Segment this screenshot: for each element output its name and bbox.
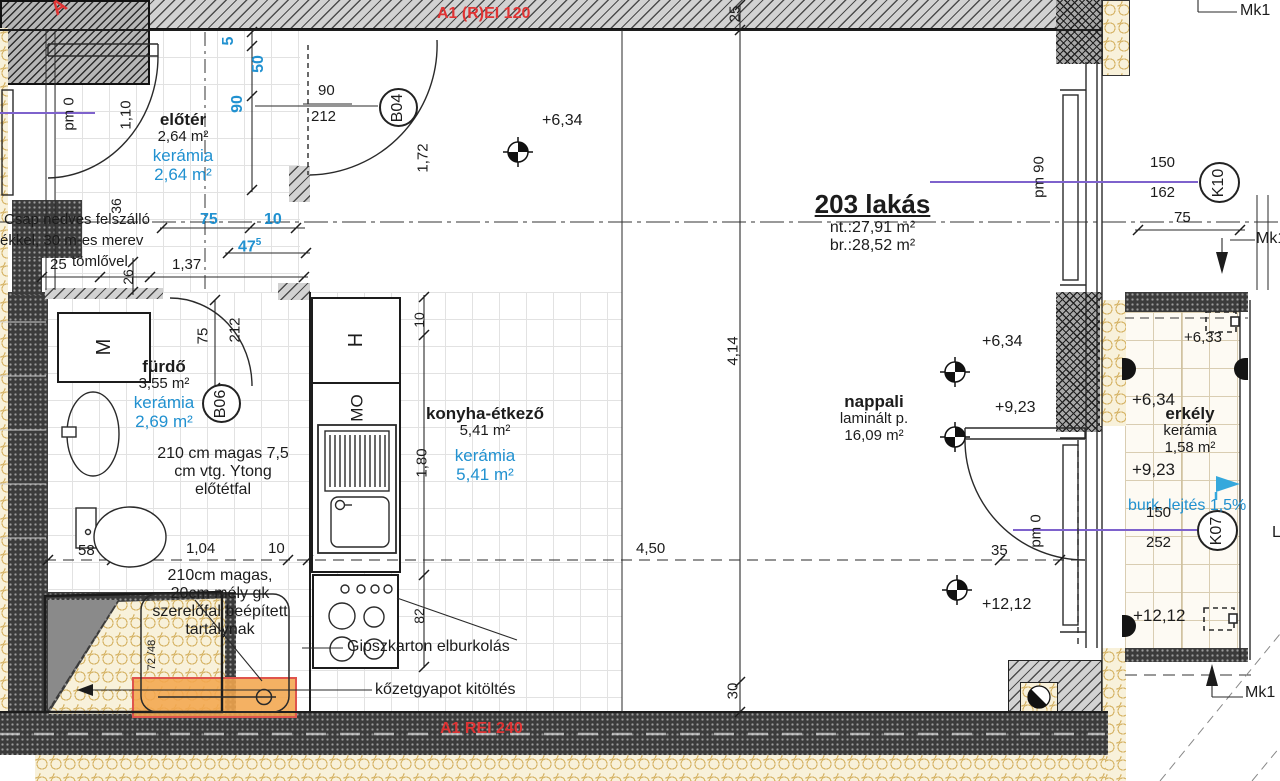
dim-58: 58 [78, 543, 95, 560]
room-eloter: előtér 2,64 m² kerámia 2,64 m² [118, 110, 248, 184]
level-nappali-2: +9,23 [995, 399, 1035, 417]
apartment-gross-area: br.:28,52 m² [795, 237, 950, 255]
apartment-title-block: 203 lakás nt.:27,91 m² br.:28,52 m² [795, 190, 950, 255]
dim-26: 26 [121, 269, 137, 285]
dim-90: 90 [229, 95, 247, 113]
mark-mk1-mid: Mk1 [1256, 230, 1280, 248]
dim-50: 50 [250, 55, 268, 73]
dim-1-04: 1,04 [186, 541, 215, 558]
dim-82: 82 [412, 608, 428, 624]
pm90-label: pm 90 [1032, 156, 1049, 198]
sink-label: MO [347, 394, 366, 421]
dim-terrace-252: 252 [1146, 535, 1171, 552]
dim-top-25: 25 [728, 6, 745, 23]
riser-note-line1: Csap nedves felszálló [4, 212, 150, 229]
dim-4-50: 4,50 [636, 541, 665, 558]
dim-4-14: 4,14 [726, 336, 743, 365]
ytong-note-line2: cm vtg. Ytong [128, 463, 318, 481]
dim-1-72: 1,72 [416, 143, 433, 172]
dim-door-width: 90 [318, 83, 335, 100]
level-nappali-1: +6,34 [982, 333, 1022, 351]
annotation-layer: A1 (R)EI 120 A A1 REI 240 203 lakás nt.:… [0, 0, 1280, 781]
tank-note-line2: 20cm mély gk [136, 585, 304, 603]
room-finish: kerámia [118, 146, 248, 165]
room-finish-area: 2,64 m² [118, 165, 248, 184]
floor-plan: B04 B06 K10 K07 A1 (R)EI 120 A A1 REI 24… [0, 0, 1280, 781]
tank-note-line1: 210cm magas, [136, 567, 304, 585]
ytong-note-line3: előtétfal [128, 481, 318, 499]
pm0-terrace-label: pm 0 [1029, 514, 1046, 547]
dim-10: 10 [264, 211, 282, 229]
dim-35: 35 [991, 543, 1008, 560]
room-area: 5,41 m² [400, 423, 570, 440]
level-nappali-3: +12,12 [982, 596, 1031, 614]
dim-window-75: 75 [1174, 210, 1191, 227]
room-area: 1,58 m² [1148, 440, 1232, 457]
tank-note: 210cm magas, 20cm mély gk szerelőfal beé… [136, 567, 304, 639]
tank-note-line3: szerelőfal beépített [136, 603, 304, 621]
ytong-note-line1: 210 cm magas 7,5 [128, 445, 318, 463]
room-area: 16,09 m² [820, 428, 928, 445]
level-erkely-2: +9,23 [1132, 460, 1175, 479]
apartment-net-area: nt.:27,91 m² [795, 219, 950, 237]
dim-36: 36 [109, 198, 125, 214]
pm0-entry-label: pm 0 [62, 97, 79, 130]
room-floor: laminált p. [820, 411, 928, 428]
room-nappali: nappali laminált p. 16,09 m² [820, 392, 928, 445]
mark-l-cut: L [1272, 524, 1280, 542]
dim-5: 5 [220, 37, 238, 46]
ytong-note: 210 cm magas 7,5 cm vtg. Ytong előtétfal [128, 445, 318, 499]
dim-door-height: 212 [311, 109, 336, 126]
fridge-label: H [345, 333, 367, 347]
mark-mk1-bottom: Mk1 [1245, 684, 1275, 702]
mark-mk1-top: Mk1 [1240, 2, 1270, 20]
apartment-name: 203 lakás [795, 190, 950, 219]
dim-1-37: 1,37 [172, 257, 201, 274]
fire-rating-corner: A [47, 0, 72, 21]
tank-note-line4: tartálynak [136, 621, 304, 639]
room-name: fürdő [110, 357, 218, 376]
dim-25: 25 [50, 257, 67, 274]
room-erkely: erkély kerámia 1,58 m² [1148, 404, 1232, 457]
dim-1-10: 1,10 [119, 100, 136, 129]
room-name: konyha-étkező [400, 404, 570, 423]
dim-bdoor-width: 75 [196, 328, 213, 345]
dim-k10t: 10 [412, 312, 428, 328]
gipszkarton-note: Gipszkarton elburkolás [347, 638, 510, 656]
kozetgyapot-note: kőzetgyapot kitöltés [375, 681, 516, 699]
room-finish-area: 2,69 m² [110, 412, 218, 431]
dim-1-80: 1,80 [415, 448, 432, 477]
level-erkely-3: +12,12 [1133, 606, 1185, 625]
fire-rating-top: A1 (R)EI 120 [437, 5, 530, 23]
dim-75: 75 [200, 211, 218, 229]
room-name: nappali [820, 392, 928, 411]
room-finish: kerámia [110, 393, 218, 412]
level-erkely-0: +6,33 [1184, 330, 1222, 347]
room-finish: kerámia [1148, 423, 1232, 440]
dim-bdoor-height: 212 [228, 317, 245, 342]
room-furdo: fürdő 3,55 m² kerámia 2,69 m² [110, 357, 218, 431]
washing-machine-label: M [93, 339, 115, 356]
level-erkely-1: +6,34 [1132, 390, 1175, 409]
dim-terrace-150: 150 [1146, 505, 1171, 522]
dim-10b: 10 [268, 541, 285, 558]
dim-window-150: 150 [1150, 155, 1175, 172]
fire-rating-bottom: A1 REI 240 [440, 720, 523, 738]
riser-note-line2: ékkel, 30 m-es merev [0, 233, 143, 250]
room-area: 2,64 m² [118, 129, 248, 146]
dim-475: 475 [238, 237, 261, 256]
level-kitchen: +6,34 [542, 112, 582, 130]
wedge-label: 72 /48 [146, 640, 158, 671]
dim-window-162: 162 [1150, 185, 1175, 202]
dim-30: 30 [726, 683, 743, 700]
room-area: 3,55 m² [110, 376, 218, 393]
